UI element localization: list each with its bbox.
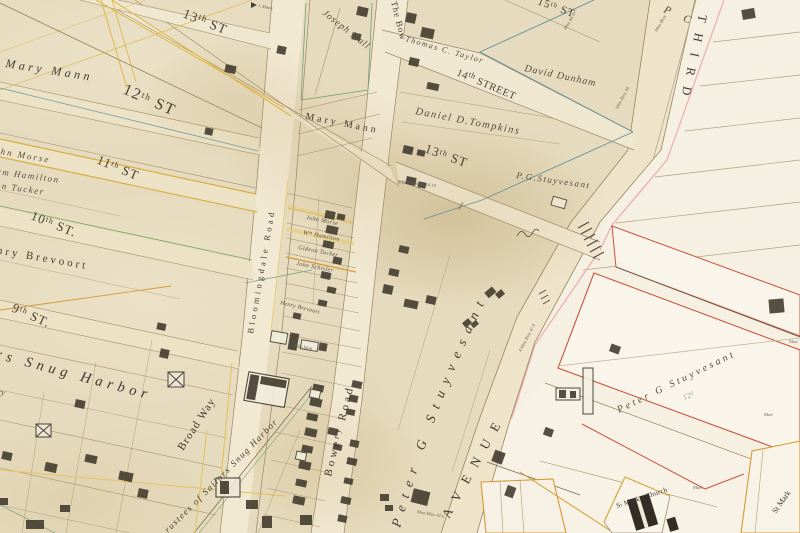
svg-text:Mon': Mon' [789,339,799,344]
svg-text:Mon': Mon' [693,485,703,490]
svg-text:Mon': Mon' [764,412,774,417]
